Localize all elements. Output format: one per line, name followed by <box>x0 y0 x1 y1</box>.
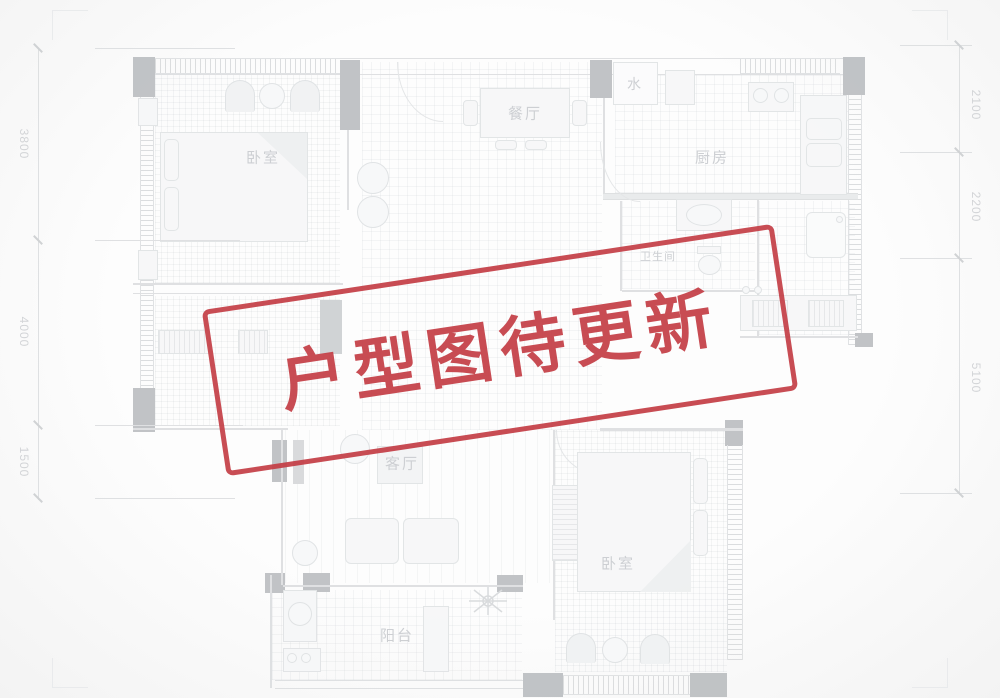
closet-hanger-icon <box>357 162 389 194</box>
hanger-icon <box>602 637 628 663</box>
sink-icon <box>806 118 842 140</box>
tall-cabinet-icon <box>423 606 449 672</box>
hanger-icon <box>225 80 255 112</box>
wall-block <box>340 60 360 130</box>
washbasin-icon <box>686 204 722 226</box>
water-label: 水 <box>627 74 643 94</box>
balcony-rail <box>275 688 523 689</box>
wall-line <box>133 283 343 285</box>
dim-ext-line <box>95 48 235 49</box>
bedroom-tl-label: 卧室 <box>246 147 280 168</box>
nightstand-icon <box>138 98 158 126</box>
closet-hanger-icon <box>357 196 389 228</box>
wall-block <box>725 420 743 446</box>
chair-icon <box>495 140 517 150</box>
wall-block <box>843 57 865 95</box>
shower-head-icon <box>836 216 843 223</box>
chair-icon <box>463 100 478 126</box>
update-pending-stamp-text: 户型图待更新 <box>276 284 725 416</box>
dresser-icon <box>158 330 210 354</box>
pillow-icon <box>693 458 708 504</box>
wall-block <box>590 60 612 98</box>
corner-mark <box>912 10 948 40</box>
plant-icon <box>465 586 511 616</box>
wall-block <box>690 673 727 697</box>
knob-icon <box>301 653 311 663</box>
pillow-icon <box>164 139 179 181</box>
window-bedroom-bottom <box>563 675 690 695</box>
nightstand-icon <box>138 250 158 280</box>
wall-block <box>133 57 155 97</box>
hanger-icon <box>290 80 320 112</box>
side-table-icon <box>292 540 318 566</box>
dining-label: 餐厅 <box>508 103 542 124</box>
sofa-icon <box>345 518 399 564</box>
wall-line <box>347 130 349 210</box>
corner-mark <box>52 10 88 40</box>
cabinet-icon <box>665 70 695 105</box>
sink-icon <box>806 143 842 167</box>
dim-label-left-3: 1500 <box>17 447 31 478</box>
wall-block <box>523 673 563 697</box>
kitchen-label: 厨房 <box>695 147 729 168</box>
dim-label-right-2: 2200 <box>969 192 983 223</box>
dim-label-right-1: 2100 <box>969 90 983 121</box>
floor-plan-image: 卧室 餐厅 水 厨房 卫生间 客厅 阳台 卧室 3800 4000 1500 2… <box>0 0 1000 698</box>
bedroom-br-label: 卧室 <box>601 553 635 574</box>
wall-line <box>600 428 743 431</box>
chair-icon <box>572 100 587 126</box>
hanger-icon <box>640 634 670 664</box>
dim-line-left <box>38 48 39 500</box>
window-bedroom-right <box>727 445 743 660</box>
corner-mark <box>52 658 88 688</box>
wall-line <box>270 575 272 688</box>
dim-label-left-1: 3800 <box>17 129 31 160</box>
dim-ext-line <box>95 240 240 241</box>
pillow-icon <box>693 510 708 556</box>
dim-label-left-2: 4000 <box>17 317 31 348</box>
dim-line-right <box>959 45 960 495</box>
corner-mark <box>912 658 948 688</box>
balcony-label: 阳台 <box>380 625 414 646</box>
living-label: 客厅 <box>385 453 419 474</box>
hanger-icon <box>259 83 285 109</box>
window-top-left <box>155 58 340 74</box>
balcony-rail <box>275 680 523 681</box>
hanger-icon <box>566 633 596 663</box>
burner-icon <box>753 88 768 103</box>
knob-icon <box>287 653 297 663</box>
appliance-icon <box>808 300 844 327</box>
dim-label-right-3: 5100 <box>969 363 983 394</box>
dim-ext-line <box>95 498 235 499</box>
washing-machine-icon <box>288 602 312 626</box>
burner-icon <box>774 88 789 103</box>
top-wall-line <box>133 74 865 75</box>
chair-icon <box>525 140 547 150</box>
window-top-right <box>740 58 840 74</box>
pillow-icon <box>164 187 179 231</box>
sofa-icon <box>403 518 459 564</box>
